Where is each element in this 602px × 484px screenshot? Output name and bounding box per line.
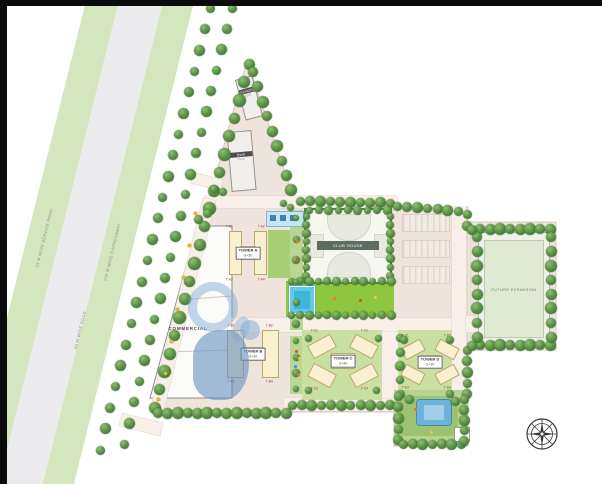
tree-icon — [546, 318, 556, 328]
clubhouse-label: CLUB HOUSE — [317, 241, 379, 250]
tree-icon — [373, 387, 380, 394]
tree-icon — [365, 400, 376, 411]
tree-icon — [222, 24, 232, 34]
play-equipment-dot — [298, 357, 301, 360]
tree-icon — [288, 312, 295, 319]
tree-icon — [387, 238, 394, 245]
street-light-dot — [176, 308, 179, 311]
tree-icon — [184, 276, 195, 287]
tree-icon — [442, 205, 453, 216]
tree-icon — [280, 200, 287, 207]
street-light-dot — [170, 340, 173, 343]
tree-icon — [342, 278, 349, 285]
play-equipment-dot — [430, 431, 433, 434]
tree-icon — [306, 400, 317, 411]
tree-icon — [170, 231, 181, 242]
park-pool — [416, 399, 452, 426]
tree-icon — [332, 277, 341, 286]
tower-a: T-A1 T-A2 T-A3 T-A4 TOWER A G+30 — [229, 231, 267, 275]
tree-icon — [344, 206, 352, 214]
unit-tag: T-A1 — [226, 225, 233, 229]
tree-icon — [546, 232, 556, 242]
tree-icon — [303, 213, 310, 220]
tree-icon — [164, 348, 176, 360]
tree-icon — [190, 67, 199, 76]
tree-icon — [393, 413, 404, 424]
tree-icon — [212, 66, 221, 75]
tree-icon — [463, 379, 472, 388]
tree-icon — [287, 204, 294, 211]
tree-icon — [315, 312, 322, 319]
tree-icon — [194, 215, 203, 224]
tree-icon — [160, 273, 170, 283]
tree-icon — [463, 210, 472, 219]
unit-tag: T-C2 — [361, 329, 368, 333]
parking-bay — [402, 266, 450, 284]
tree-icon — [96, 446, 105, 455]
tree-icon — [393, 402, 403, 412]
tower-a-label: TOWER A G+30 — [236, 247, 261, 260]
tree-icon — [375, 335, 382, 342]
tree-icon — [143, 256, 152, 265]
unit-tag: T-B2 — [266, 324, 273, 328]
tree-icon — [302, 229, 311, 238]
tree-icon — [351, 277, 359, 285]
lawn — [268, 230, 290, 278]
tree-icon — [121, 340, 131, 350]
tree-icon — [137, 277, 147, 287]
tree-icon — [124, 418, 135, 429]
tree-icon — [535, 224, 545, 234]
tree-icon — [248, 67, 258, 77]
tree-icon — [176, 211, 186, 221]
tree-icon — [302, 221, 310, 229]
tree-icon — [462, 356, 472, 366]
tree-icon — [288, 401, 297, 410]
tree-icon — [315, 278, 322, 285]
play-equipment-dot — [296, 258, 299, 261]
unit-tag: T-D4 — [444, 386, 451, 390]
tree-icon — [394, 425, 403, 434]
future-expansion-plot: FUTURE EXPANSION — [484, 240, 544, 338]
tree-icon — [459, 436, 469, 446]
tree-icon — [505, 224, 515, 234]
compass-rose-icon — [524, 416, 560, 452]
tree-icon — [326, 197, 335, 206]
tree-icon — [324, 206, 333, 215]
tree-icon — [353, 206, 362, 215]
tree-icon — [335, 197, 345, 207]
tree-icon — [296, 197, 305, 206]
tree-icon — [471, 260, 483, 272]
tree-icon — [462, 367, 473, 378]
tree-icon — [292, 320, 300, 328]
tree-icon — [285, 184, 297, 196]
tree-icon — [546, 246, 557, 257]
tree-icon — [351, 311, 359, 319]
tree-icon — [402, 202, 412, 212]
street-light-dot — [164, 372, 167, 375]
tree-icon — [369, 312, 376, 319]
play-equipment-dot — [295, 350, 298, 353]
tree-icon — [386, 221, 394, 229]
unit-tag: T-A2 — [258, 225, 265, 229]
tree-icon — [396, 348, 405, 357]
tree-icon — [505, 340, 515, 350]
tree-icon — [342, 312, 349, 319]
tree-icon — [194, 239, 206, 251]
tree-icon — [147, 234, 158, 245]
tree-icon — [460, 395, 469, 404]
tree-icon — [467, 341, 477, 351]
site-plan: 24 M WIDE SERVICE ROAD 130 M WIDE EXPRES… — [0, 0, 602, 484]
unit-tag: T-A4 — [258, 278, 265, 282]
unit-tag: T-C4 — [361, 387, 368, 391]
tree-icon — [172, 407, 184, 419]
tree-icon — [293, 215, 299, 221]
tree-icon — [364, 207, 371, 214]
tree-icon — [145, 335, 155, 345]
tree-icon — [400, 336, 408, 344]
tree-icon — [359, 311, 368, 320]
tree-icon — [197, 128, 206, 137]
tree-icon — [229, 113, 240, 124]
street-light-dot — [157, 398, 160, 401]
tree-icon — [303, 264, 310, 271]
tree-icon — [214, 167, 225, 178]
tree-icon — [378, 311, 386, 319]
tree-icon — [293, 386, 299, 392]
play-equipment-dot — [374, 296, 377, 299]
tree-icon — [386, 254, 395, 263]
tree-icon — [535, 340, 545, 350]
tree-icon — [281, 170, 292, 181]
tree-icon — [163, 171, 174, 182]
unit-tag: T-C1 — [311, 329, 318, 333]
tower-a-name: TOWER A — [239, 249, 258, 254]
tree-icon — [293, 299, 300, 306]
tree-icon — [412, 202, 423, 213]
tree-icon — [303, 238, 310, 245]
tree-icon — [378, 277, 386, 285]
tree-icon — [545, 260, 557, 272]
unit-tag: T-C3 — [311, 387, 318, 391]
tree-icon — [231, 407, 243, 419]
tree-icon — [305, 311, 314, 320]
tree-icon — [387, 264, 394, 271]
tree-icon — [460, 426, 469, 435]
tree-icon — [546, 289, 557, 300]
tower-a-floors: G+30 — [239, 253, 258, 257]
street-light-dot — [194, 212, 197, 215]
tree-icon — [387, 277, 396, 286]
parking-bay — [402, 240, 450, 258]
tree-icon — [120, 440, 129, 449]
tree-icon — [446, 439, 457, 450]
tree-icon — [293, 279, 299, 285]
tree-icon — [302, 254, 311, 263]
tree-icon — [459, 405, 469, 415]
tree-icon — [405, 395, 414, 404]
park-pool-water — [424, 405, 444, 420]
play-equipment-dot — [297, 373, 300, 376]
tree-icon — [433, 204, 443, 214]
tree-icon — [346, 401, 355, 410]
future-expansion-label: FUTURE EXPANSION — [491, 287, 536, 292]
tree-icon — [451, 397, 460, 406]
tree-icon — [387, 311, 396, 320]
tree-icon — [210, 185, 218, 193]
tree-icon — [305, 387, 312, 394]
tower-c-name: TOWER C — [334, 357, 353, 362]
tree-icon — [293, 338, 299, 344]
tree-icon — [185, 169, 196, 180]
tree-icon — [305, 277, 314, 286]
tree-icon — [315, 206, 323, 214]
ews-floors: G+4 — [230, 156, 253, 162]
tree-icon — [546, 332, 557, 343]
tree-icon — [277, 156, 287, 166]
tree-icon — [423, 204, 432, 213]
play-equipment-dot — [294, 365, 297, 368]
tower-c-label: TOWER C G+30 — [331, 355, 356, 368]
tree-icon — [369, 278, 376, 285]
tree-icon — [267, 126, 278, 137]
tree-icon — [219, 188, 227, 196]
tree-icon — [332, 311, 341, 320]
watermark-ring — [188, 282, 238, 332]
play-equipment-dot — [296, 240, 299, 243]
tree-icon — [203, 209, 212, 218]
deck-cabana — [270, 215, 276, 221]
tree-icon — [305, 335, 312, 342]
tree-icon — [178, 108, 189, 119]
tree-icon — [393, 202, 402, 211]
tree-icon — [376, 401, 385, 410]
tree-icon — [454, 207, 463, 216]
tree-icon — [387, 213, 394, 220]
unit-tag: T-D3 — [402, 386, 409, 390]
tower-d-label: TOWER D G+30 — [418, 356, 443, 369]
frame-top — [0, 0, 602, 6]
tree-icon — [200, 24, 210, 34]
play-equipment-dot — [414, 408, 417, 411]
tree-icon — [359, 277, 368, 286]
tree-icon — [472, 246, 483, 257]
play-equipment-dot — [359, 299, 362, 302]
tree-icon — [155, 293, 166, 304]
tree-icon — [335, 207, 342, 214]
tower-c: T-C1 T-C2 T-C3 T-C4 TOWER C G+30 — [308, 331, 378, 391]
tower-c-floors: G+30 — [334, 361, 353, 365]
tree-icon — [446, 336, 454, 344]
frame-left — [0, 0, 7, 484]
tree-icon — [194, 45, 205, 56]
tree-icon — [417, 439, 428, 450]
street-light-dot — [182, 276, 185, 279]
street-light-dot — [188, 244, 191, 247]
tree-icon — [459, 415, 470, 426]
parking-bay — [402, 214, 450, 232]
tree-icon — [271, 140, 283, 152]
tree-icon — [317, 401, 326, 410]
tree-icon — [188, 257, 201, 270]
tree-icon — [396, 376, 404, 384]
tower-d-floors: G+30 — [421, 362, 440, 366]
tree-icon — [336, 400, 347, 411]
unit-tag: T-A3 — [226, 278, 233, 282]
play-equipment-dot — [333, 297, 336, 300]
tree-icon — [386, 229, 395, 238]
tree-icon — [467, 225, 477, 235]
deck-cabana — [280, 215, 286, 221]
tree-icon — [166, 253, 175, 262]
tree-icon — [395, 361, 405, 371]
tree-icon — [472, 275, 482, 285]
tower-d-name: TOWER D — [421, 358, 440, 363]
tree-icon — [174, 130, 183, 139]
unit-tag: T-B4 — [266, 380, 273, 384]
tree-icon — [546, 275, 556, 285]
tree-icon — [399, 440, 408, 449]
tree-icon — [394, 392, 403, 401]
tree-icon — [233, 94, 246, 107]
tree-icon — [472, 318, 482, 328]
tree-icon — [428, 440, 437, 449]
tree-icon — [472, 289, 483, 300]
tree-icon — [218, 148, 231, 161]
tree-icon — [257, 96, 269, 108]
